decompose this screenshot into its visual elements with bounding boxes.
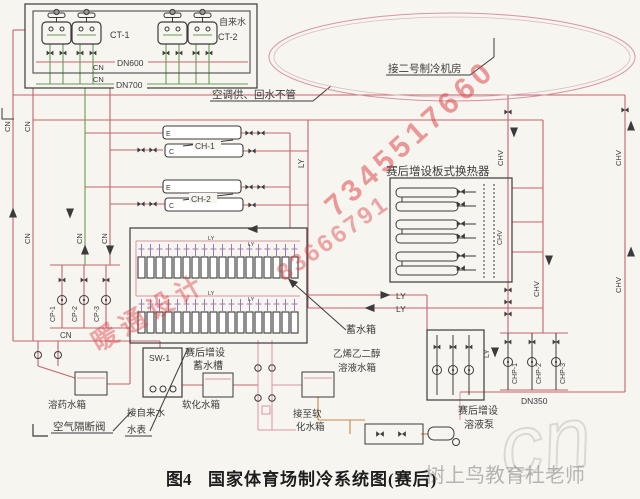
plate-heat-exchangers: 赛后增设板式换热器 CHV [386,164,512,282]
cooling-tower-cell [42,9,71,44]
diagram-canvas: cn [0,0,640,499]
chiller-ch1: E C CH-1 [137,126,264,157]
tank-row-1 [138,244,298,278]
ly-label: LY [297,158,306,168]
ly-label: LY [482,349,491,358]
cn-label: CN [23,121,32,132]
cn-label: CN [93,63,104,72]
ly-label: LY [208,236,215,242]
cn-label: CN [3,121,12,132]
condenser-label: C [169,203,174,210]
ly-label: LY [248,242,255,248]
figure-caption: 图4 国家体育场制冷系统图(赛后) [166,469,437,489]
ac-supply-note: 空调供、回水不管 [210,86,331,101]
cn-label: CN [75,233,84,244]
ly-label: LY [248,297,255,303]
glycol-tank-label-2: 溶液水箱 [338,362,376,374]
chv-label: CHV [496,150,505,166]
chv-label: CHV [614,277,623,293]
svg-text:空调供、回水不管: 空调供、回水不管 [212,88,296,101]
cooling-tower-cell [158,9,187,44]
cooling-tower-plant: 自来水 CT-1 CT-2 DN600 CN CN DN700 [25,4,257,90]
chiller-ch2: E C CH-2 [137,180,264,211]
storage-tank-bank: LY LY LY LY [130,225,307,343]
tap-water-label: 自来水 [219,16,246,27]
storage-tank-label: 蓄水箱 [346,323,376,336]
chv-label: CHV [497,230,504,245]
cp2-label: CP-2 [72,306,79,322]
watermark-teacher: 树上鸟教育杜老师 [425,464,585,487]
cp1-label: CP-1 [50,306,57,322]
chp3-label: CHP-3 [560,363,567,384]
dn350-label: DN350 [521,396,548,406]
cooling-tower-cell [188,9,217,44]
evaporator-label: E [166,185,171,192]
watermark-phone: 7345517660 [319,54,502,224]
cp-pump-group: CP-1 CP-2 CP-3 [50,265,111,328]
cp3-label: CP-3 [94,306,101,322]
ch2-label: CH-2 [191,194,211,204]
added-storage-label-1: 赛后增设 [185,346,225,359]
glycol-fill-assembly [365,424,460,446]
solution-pump-label-2: 溶液泵 [464,418,494,431]
solution-pump-label-1: 赛后增设 [458,404,498,417]
to-softened-label-1: 接至软 [293,408,322,420]
ct1-label: CT-1 [110,30,130,40]
ch1-label: CH-1 [195,141,215,151]
water-meter-label: 水表 [127,424,147,436]
cn-label: CN [60,331,72,340]
condenser-label: C [169,149,174,156]
refrigeration-system-diagram: cn [0,0,640,499]
glycol-tank-label-1: 乙烯乙二醇 [333,348,381,360]
ly-label: LY [396,304,406,314]
dn600-label: DN600 [117,58,144,68]
solution-pump-box: 赛后增设 溶液泵 [427,330,498,431]
chp1-label: CHP-1 [512,363,519,384]
air-gap-valve-label: 空气隔断阀 [53,420,106,433]
figure-number: 图4 [166,470,192,489]
chemical-tank-label: 溶药水箱 [48,399,86,411]
evaporator-label: E [166,131,171,138]
chp2-label: CHP-2 [536,363,543,384]
cn-label: CN [100,233,109,244]
sw1-label: SW-1 [149,353,170,363]
figure-title: 国家体育场制冷系统图(赛后) [208,469,437,489]
machine-room-note: 接二号制冷机房 [388,62,462,75]
cn-label: CN [93,75,104,84]
chv-label: CHV [614,150,623,166]
softened-tank-label: 软化水箱 [182,399,220,411]
cooling-tower-cell [72,9,101,44]
ct2-label: CT-2 [218,32,238,42]
pipe-tags: CN CN CN CN CN LY CHV CHV CHV CHV LY LY [2,107,635,314]
to-softened-label-2: 化水箱 [296,421,325,433]
cn-label: CN [23,233,32,244]
dn700-label: DN700 [116,80,143,90]
ly-label: LY [396,291,406,301]
added-storage-label-2: 蓄水槽 [193,359,223,372]
chv-label: CHV [532,281,541,297]
